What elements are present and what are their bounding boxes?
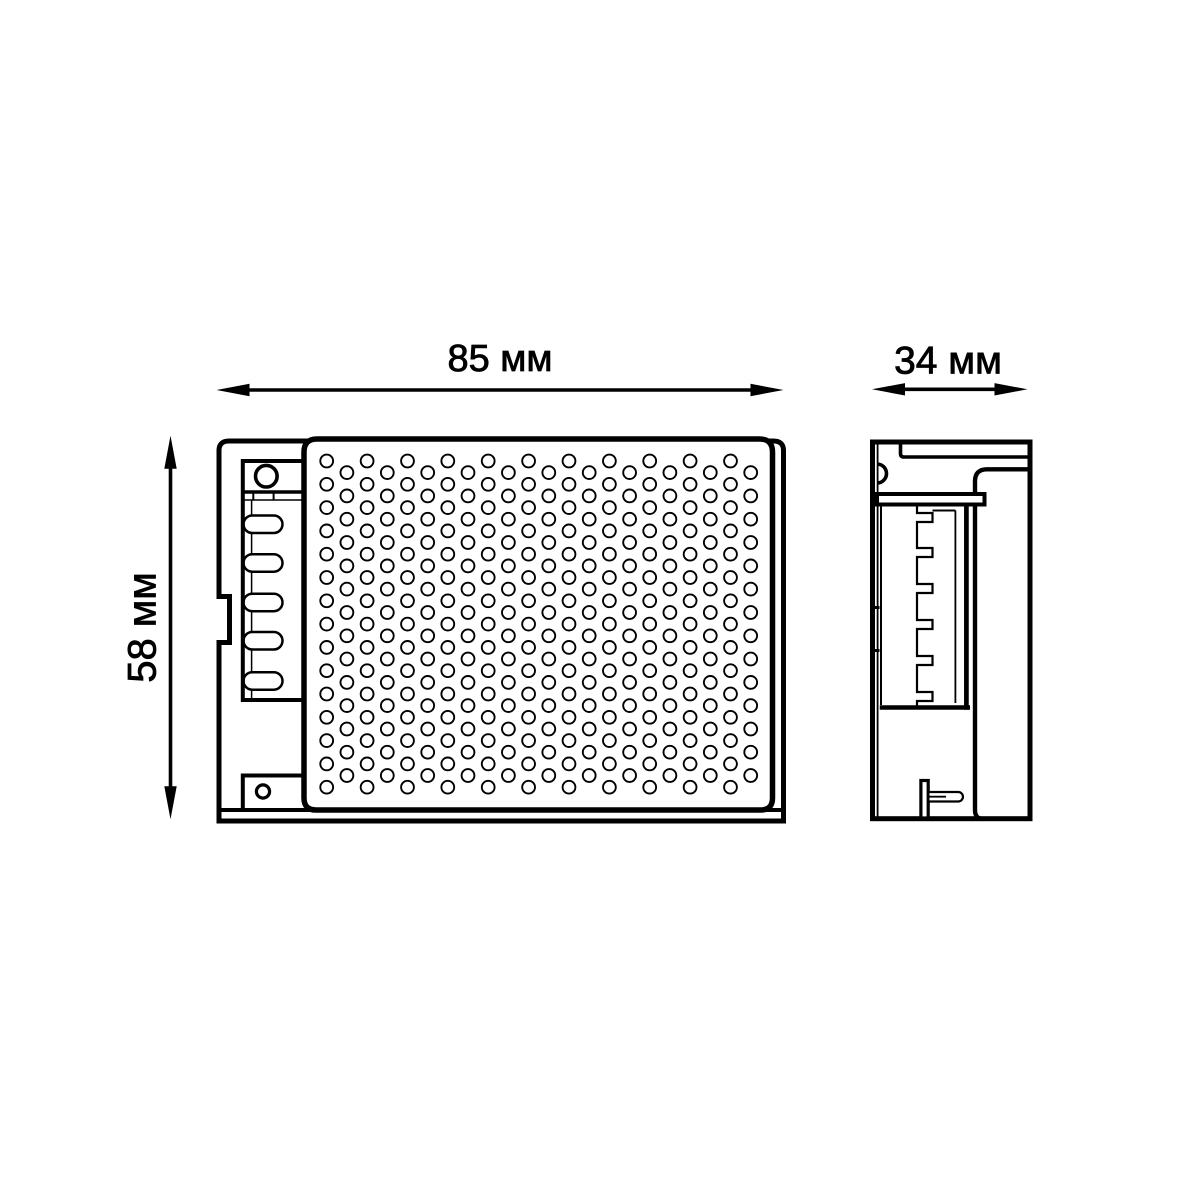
svg-text:85 мм: 85 мм [447, 338, 552, 380]
svg-text:58 мм: 58 мм [121, 572, 165, 683]
svg-text:34 мм: 34 мм [894, 340, 1002, 383]
